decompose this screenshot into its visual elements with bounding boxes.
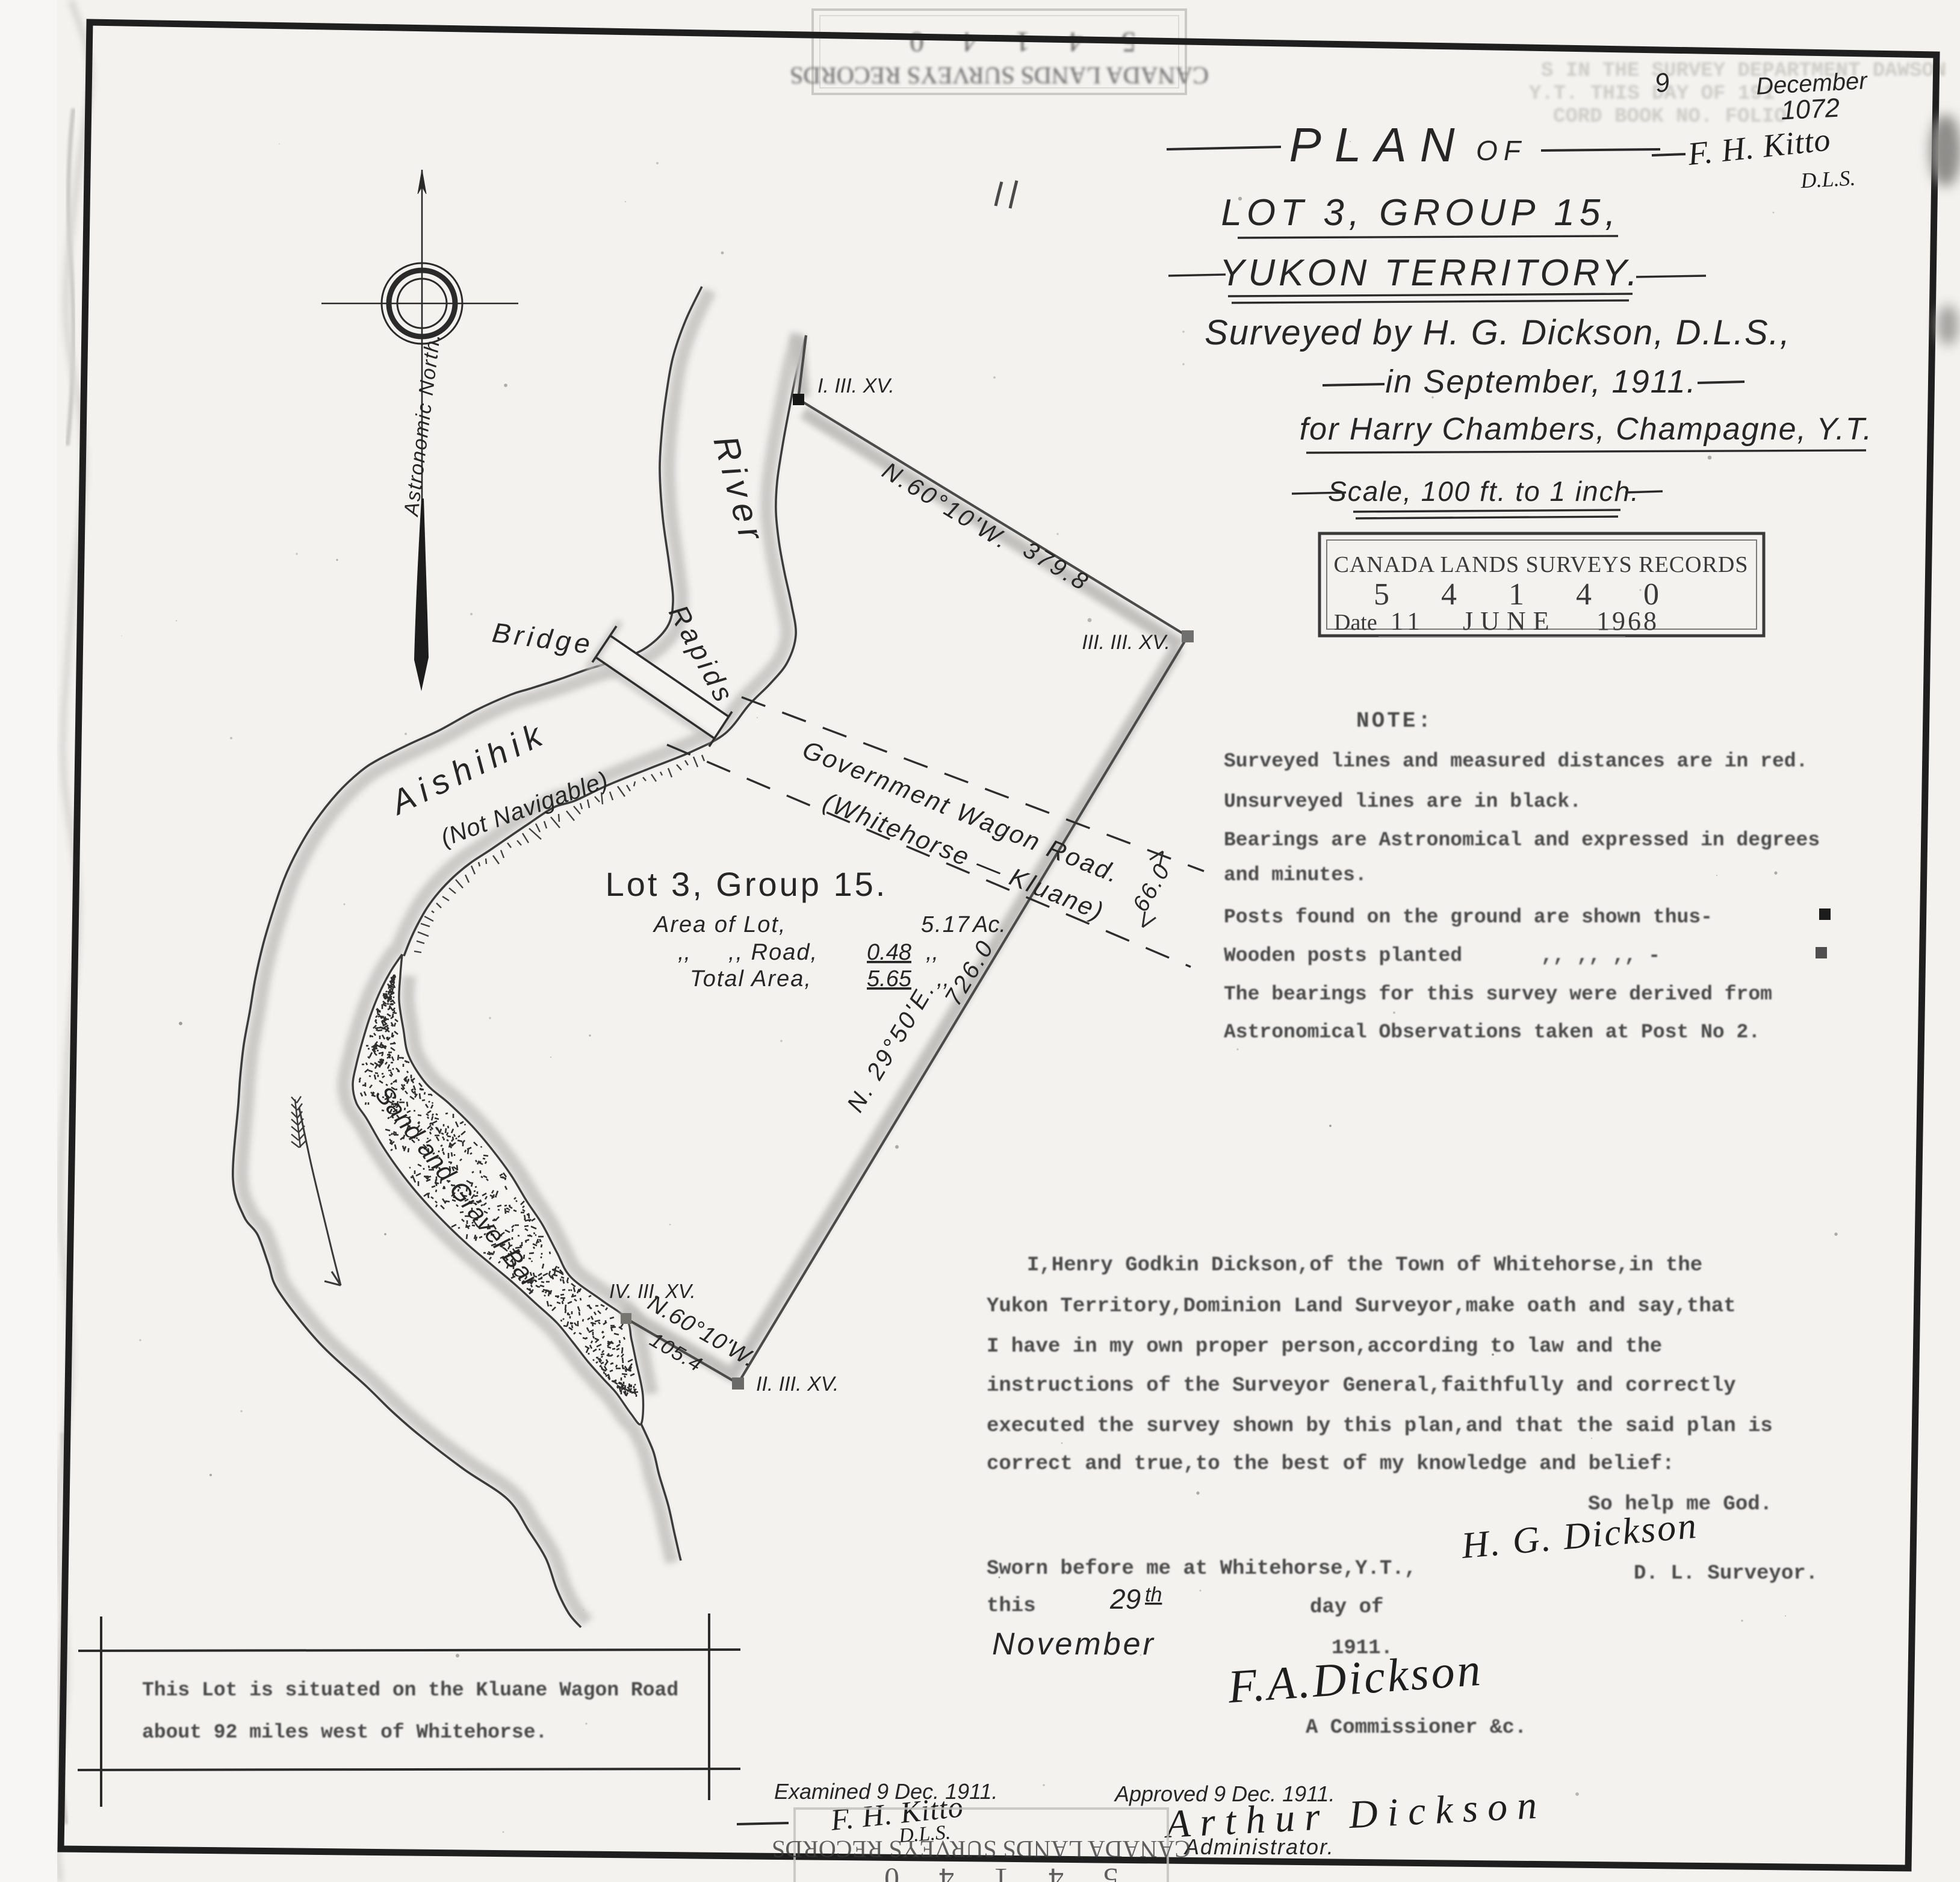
svg-text:,,: ,, [678,940,690,965]
svg-text:in September, 1911.: in September, 1911. [1385,364,1696,400]
svg-text:NOTE:: NOTE: [1356,709,1433,733]
svg-text:Area of Lot,: Area of Lot, [653,912,786,937]
svg-text:day of: day of [1310,1596,1383,1619]
svg-text:Y.T. THIS DAY OF 1: Y.T. THIS DAY OF 191 [1529,82,1775,105]
svg-text:Astronomical Observations take: Astronomical Observations taken at Post … [1224,1021,1760,1043]
svg-text:YUKON TERRITORY.: YUKON TERRITORY. [1220,252,1641,294]
svg-text:Surveyed lines and measured di: Surveyed lines and measured distances ar… [1224,750,1808,772]
svg-text:II. III. XV.: II. III. XV. [756,1373,839,1396]
svg-text:The bearings for this survey w: The bearings for this survey were derive… [1224,983,1772,1005]
svg-text:Posts found on the ground are: Posts found on the ground are shown thus… [1224,906,1713,928]
svg-text:executed the survey shown by t: executed the survey shown by this plan,a… [987,1415,1773,1438]
svg-text:CORD BOOK NO. FOLIO: CORD BOOK NO. FOLIO [1553,105,1787,128]
svg-text:Total Area,: Total Area, [690,966,812,992]
svg-text:11: 11 [1391,608,1424,636]
svg-text:correct and true,to the best o: correct and true,to the best of my knowl… [987,1453,1675,1476]
svg-text:III. III. XV.: III. III. XV. [1082,631,1170,654]
svg-text:I have in my own proper person: I have in my own proper person,according… [987,1335,1662,1358]
svg-text:for Harry Chambers, Champagne,: for Harry Chambers, Champagne, Y.T. [1300,412,1873,447]
svg-text:Administrator.: Administrator. [1183,1834,1335,1859]
svg-text:1072: 1072 [1780,93,1840,125]
svg-text:CANADA LANDS SURVEYS RECORDS: CANADA LANDS SURVEYS RECORDS [790,62,1209,89]
svg-text:November: November [992,1627,1156,1662]
svg-text:LOT 3, GROUP 15,: LOT 3, GROUP 15, [1221,192,1620,234]
svg-text:D. L. Surveyor.: D. L. Surveyor. [1634,1562,1818,1585]
svg-text:JUNE: JUNE [1463,606,1557,636]
svg-text:CANADA LANDS SURVEYS RECORDS: CANADA LANDS SURVEYS RECORDS [772,1836,1191,1863]
svg-text:PLAN: PLAN [1289,118,1468,172]
svg-text:I. III. XV.: I. III. XV. [817,374,895,397]
svg-text:,, ,, ,, -: ,, ,, ,, - [1541,945,1660,967]
svg-text:This Lot is situated on the Kl: This Lot is situated on the Kluane Wagon… [142,1679,678,1701]
svg-text:instructions of the Surveyor G: instructions of the Surveyor General,fai… [987,1374,1736,1397]
svg-text:,, Road,: ,, Road, [728,940,818,965]
svg-text:5.17: 5.17 [921,912,970,937]
svg-text:54140: 54140 [845,1862,1118,1882]
svg-text:Unsurveyed lines are in black.: Unsurveyed lines are in black. [1224,790,1581,813]
svg-text:1968: 1968 [1596,606,1659,636]
svg-text:Ac.: Ac. [972,912,1006,937]
svg-text:0.48: 0.48 [867,940,911,965]
svg-text:Lot 3, Group 15.: Lot 3, Group 15. [606,865,888,903]
svg-text:D.L.S.: D.L.S. [1799,166,1856,193]
svg-text:5.65: 5.65 [867,966,912,992]
svg-text:this: this [987,1595,1036,1618]
svg-text:Scale, 100 ft. to 1 inch.: Scale, 100 ft. to 1 inch. [1328,476,1640,507]
svg-text:Yukon Territory,Dominion Land: Yukon Territory,Dominion Land Surveyor,m… [987,1295,1736,1318]
svg-text:CANADA LANDS SURVEYS RECORDS: CANADA LANDS SURVEYS RECORDS [1333,552,1748,577]
svg-text:Wooden posts planted: Wooden posts planted [1224,945,1462,967]
svg-text:,,: ,, [926,940,938,965]
svg-text:A Commissioner &c.: A Commissioner &c. [1306,1716,1527,1739]
svg-text:OF: OF [1476,135,1527,166]
svg-text:Surveyed by H. G. Dickson, D.L: Surveyed by H. G. Dickson, D.L.S., [1205,313,1791,352]
svg-text:I,Henry Godkin Dickson,of the: I,Henry Godkin Dickson,of the Town of Wh… [1027,1254,1702,1277]
svg-text:about 92 miles west of Whiteho: about 92 miles west of Whitehorse. [142,1721,547,1744]
svg-text:Bearings are Astronomical and: Bearings are Astronomical and expressed … [1224,829,1820,851]
svg-text:th: th [1145,1583,1162,1606]
svg-text:and minutes.: and minutes. [1224,864,1367,886]
svg-text:29: 29 [1109,1583,1141,1615]
svg-text:Date: Date [1334,610,1377,635]
svg-text:S IN THE SURVEY DEPARTMENT DAW: S IN THE SURVEY DEPARTMENT DAWSON [1541,60,1946,82]
svg-text:Sworn before me at Whitehorse,: Sworn before me at Whitehorse,Y.T., [987,1557,1416,1580]
